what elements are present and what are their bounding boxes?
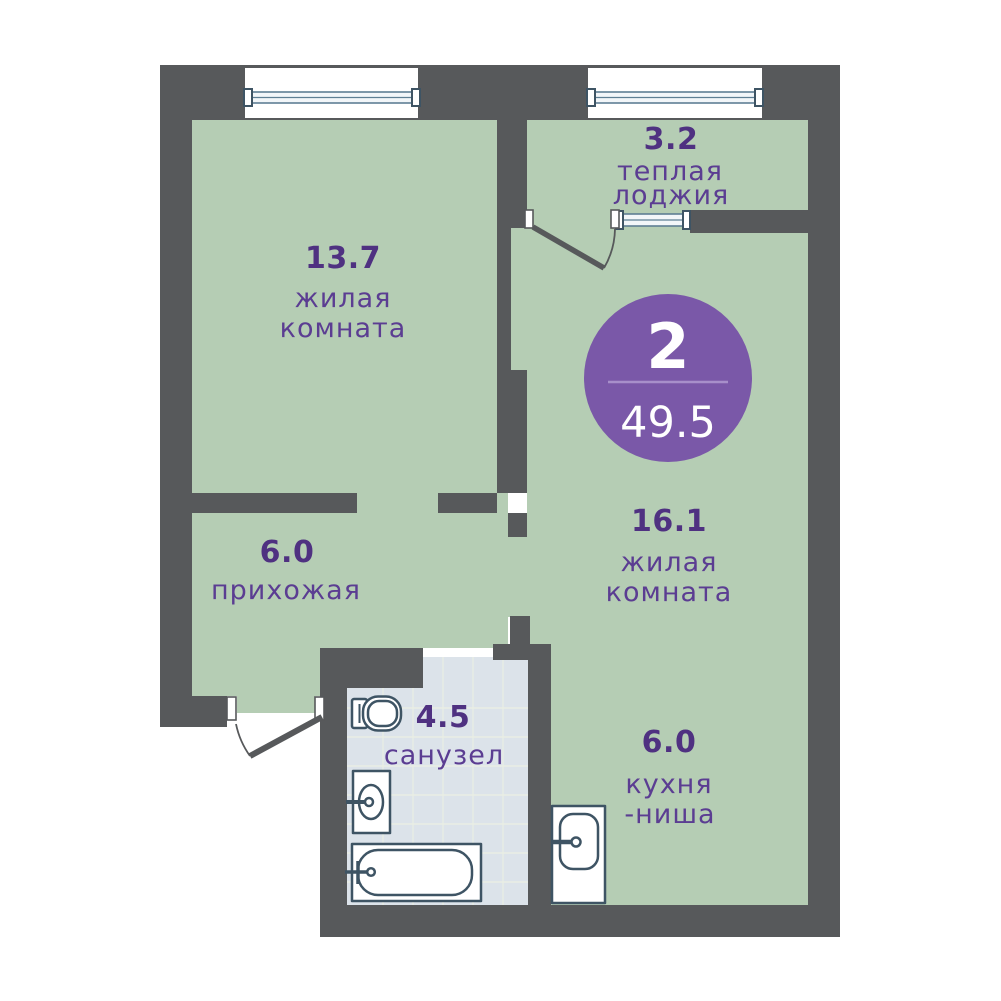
- room-name-label: комната: [280, 313, 407, 344]
- bathtub-icon: [345, 844, 481, 901]
- wall-bathroom-left: [320, 648, 347, 937]
- wall-stub-below-opening: [510, 616, 530, 644]
- window-icon: [587, 68, 763, 118]
- wall-right: [808, 65, 840, 937]
- room-name-label: комната: [606, 577, 733, 608]
- room-name-label: жилая: [621, 547, 718, 578]
- room-area-label: 6.0: [260, 535, 315, 570]
- loggia-window-icon: [616, 211, 690, 229]
- floor-plan: 13.7 жилая комната 3.2 теплая лоджия 16.…: [0, 0, 1001, 1001]
- entrance-threshold-floor: [237, 696, 315, 713]
- window-icon: [244, 68, 420, 118]
- hallway-lower-floor: [192, 648, 320, 696]
- wall-room1-hallway-left: [160, 493, 357, 513]
- room-name-label: прихожая: [211, 575, 361, 606]
- bathroom-sink-icon: [346, 771, 390, 833]
- bathroom-door-threshold: [423, 648, 493, 657]
- wall-column-top: [497, 120, 527, 228]
- room2-edge-floor: [511, 228, 527, 370]
- living-room-1-and-hallway-floor: [192, 120, 508, 649]
- room-area-label: 16.1: [631, 504, 707, 539]
- wall-bathroom-top: [347, 648, 423, 688]
- room-name-label: санузел: [384, 740, 504, 771]
- hallway-opening-floor: [508, 537, 527, 617]
- badge-rooms-count: 2: [646, 310, 689, 383]
- wall-bottom: [320, 905, 840, 937]
- badge-total-area: 49.5: [620, 398, 716, 448]
- wall-room1-hallway-right: [438, 493, 497, 513]
- room-name-label: кухня: [625, 769, 712, 800]
- wall-stub-above-opening: [508, 513, 527, 537]
- wall-bath-kitchen-divider: [528, 644, 551, 905]
- room-area-label: 4.5: [416, 700, 471, 735]
- wall-left: [160, 65, 192, 727]
- wall-hallway-bottom: [160, 696, 227, 727]
- wall-loggia-partition: [690, 210, 808, 233]
- room-area-label: 6.0: [642, 725, 697, 760]
- room-area-label: 3.2: [644, 122, 699, 157]
- room-name-label: жилая: [295, 283, 392, 314]
- toilet-icon: [352, 697, 401, 731]
- summary-badge: 2 49.5: [584, 294, 752, 462]
- room-name-label: -ниша: [624, 799, 715, 830]
- kitchen-sink-icon: [552, 806, 605, 903]
- room-name-label: лоджия: [613, 180, 730, 211]
- wall-column-mid: [497, 370, 527, 493]
- wall-room1-room2-thin: [497, 228, 511, 370]
- room-area-label: 13.7: [305, 241, 381, 276]
